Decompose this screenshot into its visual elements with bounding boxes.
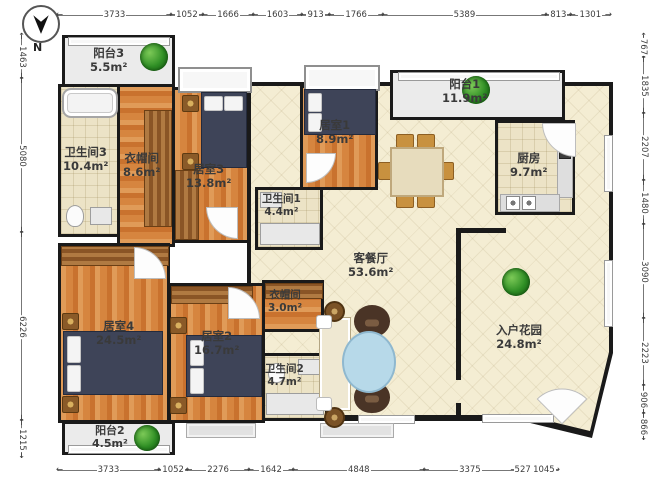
wall-garden-stub xyxy=(456,403,461,421)
dimension-1835: 1835 xyxy=(636,58,651,114)
label-cloak3: 衣帽间 8.6m² xyxy=(123,151,160,179)
dimension-4848: 4848 xyxy=(293,463,424,477)
room-name: 衣帽间 xyxy=(268,289,302,302)
room-area: 4.4m² xyxy=(262,206,301,219)
dimension-1463: 1463 xyxy=(14,35,29,79)
north-label: N xyxy=(33,41,42,54)
dimension-strip-left: 1463508062261215 xyxy=(14,35,29,458)
dimension-2207: 2207 xyxy=(636,114,651,181)
room-area: 4.5m² xyxy=(92,437,128,450)
floor-plan: 阳台3 5.5m² 卫生间3 10.4m² 衣帽间 8.6m² 居室3 13.8… xyxy=(58,35,610,455)
wall-garden-vertical xyxy=(456,228,461,380)
dimension-1052: 1052 xyxy=(159,463,187,477)
label-cloak2: 衣帽间 3.0m² xyxy=(268,289,302,315)
window-garden-east xyxy=(604,260,613,327)
dimension-1603: 1603 xyxy=(253,8,302,22)
plant-icon xyxy=(502,268,530,296)
label-kitchen: 厨房 9.7m² xyxy=(510,151,547,179)
bay-window-bed3 xyxy=(178,67,252,93)
dining-chair xyxy=(417,134,435,148)
room-name: 卫生间1 xyxy=(262,193,301,206)
dimension-767: 767 xyxy=(636,35,651,58)
room-name: 阳台1 xyxy=(442,77,487,91)
room-area: 24.8m² xyxy=(496,337,542,351)
room-area: 8.9m² xyxy=(316,132,353,146)
sofa-arm xyxy=(316,397,332,411)
plant-icon xyxy=(140,43,168,71)
room-area: 53.6m² xyxy=(348,265,393,279)
bathtub-bath3 xyxy=(62,88,118,118)
dimension-1045: 1045 xyxy=(530,463,558,477)
label-bath1: 卫生间1 4.4m² xyxy=(262,193,301,219)
dimension-906: 906 xyxy=(636,386,651,413)
label-living: 客餐厅 53.6m² xyxy=(348,251,393,279)
dimension-6226: 6226 xyxy=(14,233,29,421)
dining-table xyxy=(390,147,444,197)
dimension-2276: 2276 xyxy=(187,463,249,477)
pillow xyxy=(308,93,322,112)
pillow xyxy=(224,96,243,111)
room-name: 居室4 xyxy=(96,319,141,333)
room-area: 4.7m² xyxy=(265,376,304,389)
dimension-913: 913 xyxy=(302,8,330,22)
sink-bath3 xyxy=(90,207,112,225)
room-name: 客餐厅 xyxy=(348,251,393,265)
room-name: 居室1 xyxy=(316,118,353,132)
dining-chair xyxy=(396,134,414,148)
window-garden-south xyxy=(482,414,554,423)
room-name: 卫生间2 xyxy=(265,363,304,376)
dimension-3733: 3733 xyxy=(58,8,171,22)
pillow xyxy=(204,96,223,111)
room-name: 厨房 xyxy=(510,151,547,165)
room-area: 9.7m² xyxy=(510,165,547,179)
label-bed4: 居室4 24.5m² xyxy=(96,319,141,347)
room-name: 居室2 xyxy=(194,329,239,343)
nightstand xyxy=(170,397,187,414)
dimension-866: 866 xyxy=(636,414,651,440)
room-area: 8.6m² xyxy=(123,165,160,179)
room-area: 13.8m² xyxy=(186,176,231,190)
dimension-1215: 1215 xyxy=(14,421,29,458)
room-area: 24.5m² xyxy=(96,333,141,347)
nightstand xyxy=(182,95,199,112)
room-area: 5.5m² xyxy=(90,60,127,74)
room-area: 11.9m² xyxy=(442,91,487,105)
room-name: 入户花园 xyxy=(496,323,542,337)
dimension-1301: 1301 xyxy=(571,8,610,22)
room-area: 16.7m² xyxy=(194,343,239,357)
dimension-strip-top: 3733105216661603913176653898131301 xyxy=(58,8,610,22)
floorplan-page: { "compass": {"label": "N"}, "dimensions… xyxy=(0,0,667,500)
dimension-3375: 3375 xyxy=(424,463,515,477)
room-name: 卫生间3 xyxy=(63,145,108,159)
nightstand xyxy=(62,396,79,413)
label-balcony2: 阳台2 4.5m² xyxy=(92,424,128,451)
label-bath2: 卫生间2 4.7m² xyxy=(265,363,304,389)
label-bed3: 居室3 13.8m² xyxy=(186,162,231,190)
label-bath3: 卫生间3 10.4m² xyxy=(63,145,108,173)
dimension-strip-right: 76718352207148030902223906866 xyxy=(636,35,651,440)
room-area: 10.4m² xyxy=(63,159,108,173)
dimension-3090: 3090 xyxy=(636,225,651,319)
window-sill-bed2 xyxy=(186,423,256,438)
room-name: 衣帽间 xyxy=(123,151,160,165)
dimension-2223: 2223 xyxy=(636,319,651,386)
dimension-5080: 5080 xyxy=(14,79,29,233)
label-balcony1: 阳台1 11.9m² xyxy=(442,77,487,105)
room-area: 3.0m² xyxy=(268,302,302,315)
window-kitchen-east xyxy=(604,135,613,192)
double-bed-bed3 xyxy=(201,92,247,168)
bay-window-bed1 xyxy=(304,65,380,91)
stove-burner xyxy=(522,196,536,210)
sofa-arm xyxy=(316,315,332,329)
wall-garden-horizontal xyxy=(456,228,506,233)
plant-icon xyxy=(134,425,160,451)
dimension-527: 527 xyxy=(516,463,530,477)
label-bed1: 居室1 8.9m² xyxy=(316,118,353,146)
room-name: 阳台3 xyxy=(90,46,127,60)
stove-burner xyxy=(506,196,520,210)
label-bed2: 居室2 16.7m² xyxy=(194,329,239,357)
pillow xyxy=(190,368,204,394)
room-name: 阳台2 xyxy=(92,424,128,437)
dimension-813: 813 xyxy=(546,8,571,22)
dimension-1052: 1052 xyxy=(171,8,203,22)
pillow xyxy=(67,365,81,392)
dimension-1766: 1766 xyxy=(329,8,382,22)
north-arrow-icon xyxy=(30,13,52,35)
pillow xyxy=(67,336,81,363)
shower-bath1 xyxy=(260,223,320,245)
room-name: 居室3 xyxy=(186,162,231,176)
dimension-1666: 1666 xyxy=(203,8,253,22)
dimension-1642: 1642 xyxy=(249,463,293,477)
coffee-table xyxy=(342,331,396,393)
nightstand xyxy=(170,317,187,334)
label-balcony3: 阳台3 5.5m² xyxy=(90,46,127,74)
toilet-bath3 xyxy=(66,205,84,227)
label-garden: 入户花园 24.8m² xyxy=(496,323,542,351)
dimension-5389: 5389 xyxy=(383,8,546,22)
dimension-1480: 1480 xyxy=(636,181,651,226)
dimension-strip-bottom: 3733105222761642484833755271045 xyxy=(58,463,558,477)
nightstand xyxy=(62,313,79,330)
dimension-3733: 3733 xyxy=(58,463,159,477)
